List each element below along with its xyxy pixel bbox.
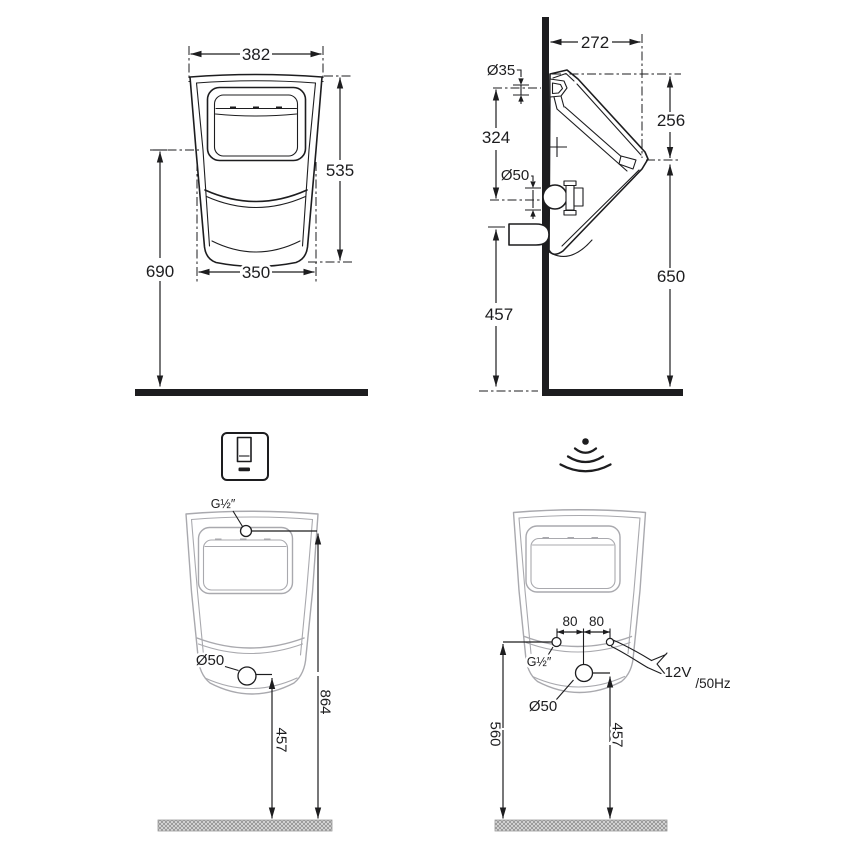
outlet-marker-sensor (576, 665, 593, 682)
floor-hatch-sensor (495, 820, 667, 831)
dim-front-rim-height: 690 (146, 262, 174, 281)
dim-side-depth: 272 (581, 33, 609, 52)
dim-front-bottom-width: 350 (242, 263, 270, 282)
label-sensor-power: 12V (665, 664, 692, 681)
urinal-dimension-drawing: 382 535 350 690 (0, 0, 868, 868)
label-side-inlet-diameter: Ø35 (487, 62, 515, 79)
label-side-outlet-diameter: Ø50 (501, 167, 529, 184)
dim-front-height: 535 (326, 161, 354, 180)
dim-manual-inlet-height: 864 (317, 689, 334, 714)
dim-side-spout-height: 650 (657, 267, 685, 286)
technical-drawing-page: 382 535 350 690 (0, 0, 868, 868)
power-cable (606, 638, 667, 674)
dim-sensor-inlet-height: 560 (487, 721, 504, 746)
inlet-marker-manual (241, 526, 252, 537)
dim-front-top-width: 382 (242, 45, 270, 64)
urinal-side-outline (509, 70, 648, 256)
dim-side-outlet-height: 457 (485, 305, 513, 324)
front-view: 382 535 350 690 (135, 45, 368, 396)
flush-plate-icon (222, 433, 268, 480)
floor-line-front (135, 389, 368, 396)
outlet-pipe (509, 224, 549, 245)
manual-flush-view: G½″ 864 Ø50 457 (158, 497, 334, 831)
urinal-front-outline (190, 75, 322, 267)
label-sensor-inlet-thread: G½″ (527, 655, 552, 669)
sensor-flush-view: 80 80 G½″ 560 Ø50 457 12V /50Hz (487, 510, 731, 831)
dim-manual-outlet-height: 457 (273, 727, 290, 752)
label-manual-inlet-thread: G½″ (211, 497, 236, 511)
dim-sensor-offset-left: 80 (562, 614, 577, 629)
dim-sensor-outlet-height: 457 (609, 722, 626, 747)
floor-hatch-manual (158, 820, 332, 831)
floor-line-side (542, 389, 683, 396)
outlet-marker-manual (238, 667, 256, 685)
dim-sensor-offset-right: 80 (589, 614, 604, 629)
dim-side-inlet-to-outlet: 324 (482, 128, 510, 147)
label-sensor-outlet-diameter: Ø50 (529, 698, 557, 715)
side-view: 272 256 650 324 Ø35 Ø50 457 (479, 17, 685, 396)
label-manual-outlet-diameter: Ø50 (196, 652, 224, 669)
inlet-marker-sensor (552, 638, 561, 647)
dim-side-top-to-spout: 256 (657, 111, 685, 130)
label-sensor-frequency: /50Hz (695, 676, 731, 691)
wireless-signal-icon (561, 438, 611, 471)
